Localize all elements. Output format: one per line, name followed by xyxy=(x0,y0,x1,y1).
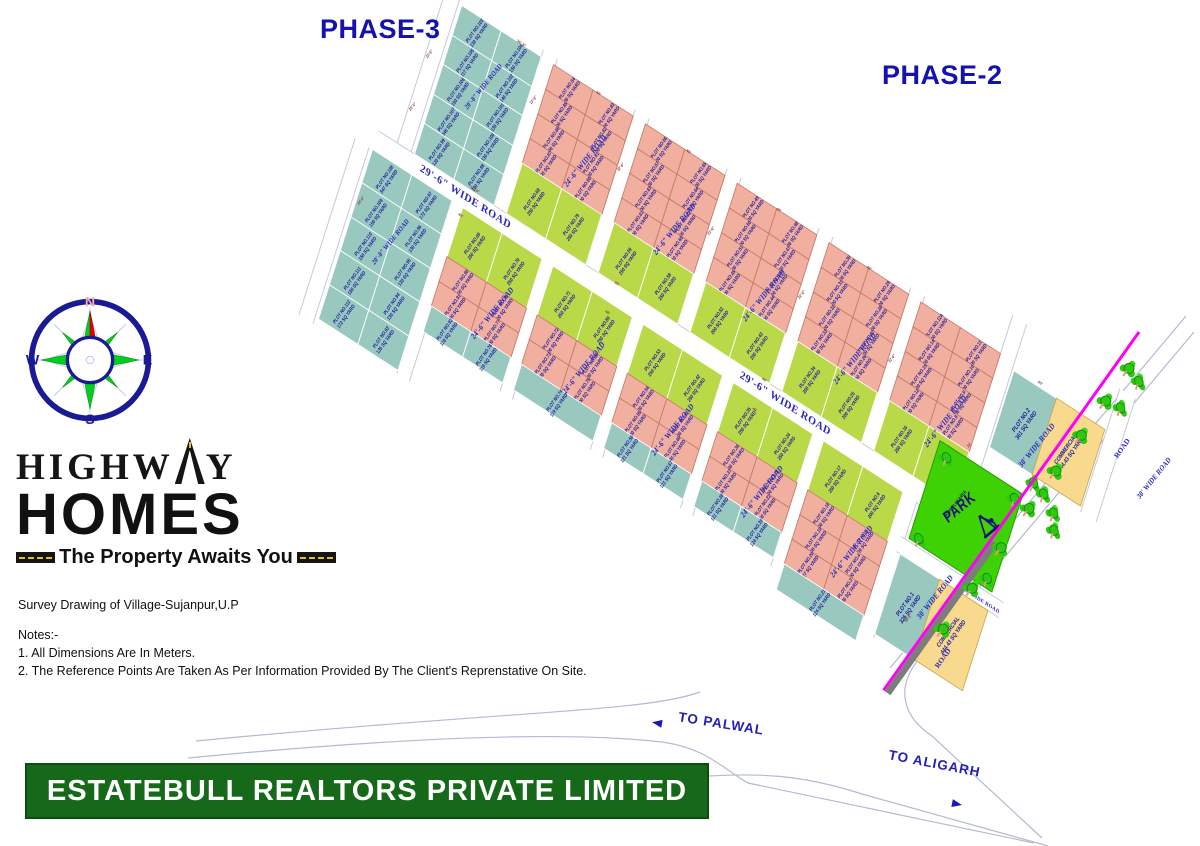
plot-label: PLOT NO.111150 SQ YARD xyxy=(343,265,367,296)
tree-icon xyxy=(1098,393,1113,408)
notes-heading: Notes:- xyxy=(18,626,587,644)
tree-icon xyxy=(1021,501,1036,516)
plot-label: PLOT NO.42250 SQ YARD xyxy=(683,372,707,403)
plot-label: PLOT NO.92118 SQ YARD xyxy=(435,316,459,347)
company-banner: ESTATEBULL REALTORS PRIVATE LIMITED xyxy=(25,763,709,819)
plot-label: PLOT NO.38121 SQ YARD xyxy=(706,491,730,522)
logo-tagline: The Property Awaits You xyxy=(16,546,336,569)
plot-label: PLOT NO.68250 SQ YARD xyxy=(522,186,546,217)
plot-label: PLOT NO.101130 SQ YARD xyxy=(486,103,510,134)
plot-label: PLOT NO.76119 SQ YARD xyxy=(475,342,499,373)
plot-label: PLOT NO.105117 SQ YARD xyxy=(456,48,480,79)
plot-label: PLOT NO.79250 SQ YARD xyxy=(562,211,586,242)
plot-label: PLOT NO.52200 SQ YARD xyxy=(706,304,730,335)
plot-label: PLOT NO.71250 SQ YARD xyxy=(553,288,577,319)
tagline-road-bar-icon xyxy=(16,552,55,563)
plot-label: PLOT NO.24250 SQ YARD xyxy=(773,430,797,461)
logo-highway-left: HIGHW xyxy=(16,451,174,484)
palwal-arrow-icon xyxy=(651,718,662,727)
compass-rose-icon: N E S W xyxy=(24,294,156,426)
logo-road-a-icon xyxy=(175,438,205,484)
compass-s: S xyxy=(85,411,94,426)
plot-label: PLOT NO.25200 SQ YARD xyxy=(837,389,861,420)
note-line-1: 1. All Dimensions Are In Meters. xyxy=(18,644,587,662)
note-line-2: 2. The Reference Points Are Taken As Per… xyxy=(18,662,587,680)
plot-label: PLOT NO.97172 SQ YARD xyxy=(414,189,438,220)
plot-label: PLOT NO.17250 SQ YARD xyxy=(824,463,848,494)
logo-word-highway: HIGHWY xyxy=(16,438,336,484)
plot-label: PLOT NO.112172 SQ YARD xyxy=(332,299,356,330)
phase-2-label: PHASE-2 xyxy=(882,60,1003,91)
logo-highway-right: Y xyxy=(206,451,237,484)
plot-label: PLOT NO.107345 SQ YARD xyxy=(437,107,461,138)
highway-homes-logo: HIGHWY HOMES The Property Awaits You xyxy=(16,438,336,569)
aligarh-arrow-icon xyxy=(951,799,962,809)
plot-label: PLOT NO.56121 SQ YARD xyxy=(616,433,640,464)
company-name: ESTATEBULL REALTORS PRIVATE LIMITED xyxy=(47,775,687,808)
phase-3-label: PHASE-3 xyxy=(320,14,441,45)
notes-block: Notes:- 1. All Dimensions Are In Meters.… xyxy=(18,626,587,680)
plot-label: PLOT NO.70250 SQ YARD xyxy=(502,255,526,286)
plot-label: PLOT NO.69250 SQ YARD xyxy=(463,230,487,261)
plot-label: PLOT NO.102140 SQ YARD xyxy=(495,73,519,104)
plot-label: PLOT NO.100130 SQ YARD xyxy=(476,132,500,163)
site-plan-canvas: PLOT NO.103130 SQ YARDPLOT NO.104150 SQ … xyxy=(0,0,1200,846)
plot-label: PLOT NO.53250 SQ YARD xyxy=(643,347,667,378)
plot-label: PLOT NO.2361 SQ YARD xyxy=(1009,404,1038,441)
plot-label: PLOT NO.43200 SQ YARD xyxy=(745,330,769,361)
tree-icon xyxy=(1074,428,1089,443)
tree-icon xyxy=(1048,463,1063,478)
plot-label: PLOT NO.16250 SQ YARD xyxy=(890,423,914,454)
compass-n: N xyxy=(85,294,95,309)
plot-label: PLOT NO.34200 SQ YARD xyxy=(798,364,822,395)
plot-label: PLOT NO.21124 SQ YARD xyxy=(808,587,832,618)
survey-title: Survey Drawing of Village-Sujanpur,U.P xyxy=(18,598,239,612)
plot-label: PLOT NO.95130 SQ YARD xyxy=(393,257,417,288)
tagline-text: The Property Awaits You xyxy=(59,546,293,569)
plot-label: PLOT NO.39124 SQ YARD xyxy=(745,517,769,548)
plot-label: PLOT NO.59250 SQ YARD xyxy=(614,245,638,276)
plot-label: PLOT NO.108347 SQ YARD xyxy=(375,164,399,195)
tagline-road-bar-icon xyxy=(297,552,336,563)
plot-label: PLOT NO.94130 SQ YARD xyxy=(382,291,406,322)
plot-label: PLOT NO.58250 SQ YARD xyxy=(654,271,678,302)
plot-label: PLOT NO.99130 SQ YARD xyxy=(427,136,451,167)
plot-label: PLOT NO.6200 SQ YARD xyxy=(863,489,887,520)
plot-label: PLOT NO.109150 SQ YARD xyxy=(364,198,388,229)
plot-label: PLOT NO.103130 SQ YARD xyxy=(465,18,489,49)
plot-label: PLOT NO.93135 SQ YARD xyxy=(371,325,395,356)
compass-e: E xyxy=(143,352,152,368)
plot-label: PLOT NO.57121 SQ YARD xyxy=(655,458,679,489)
logo-word-homes: HOMES xyxy=(16,486,336,544)
plot-label: PLOT NO.89250 SQ YARD xyxy=(592,314,616,345)
compass-w: W xyxy=(26,352,40,368)
